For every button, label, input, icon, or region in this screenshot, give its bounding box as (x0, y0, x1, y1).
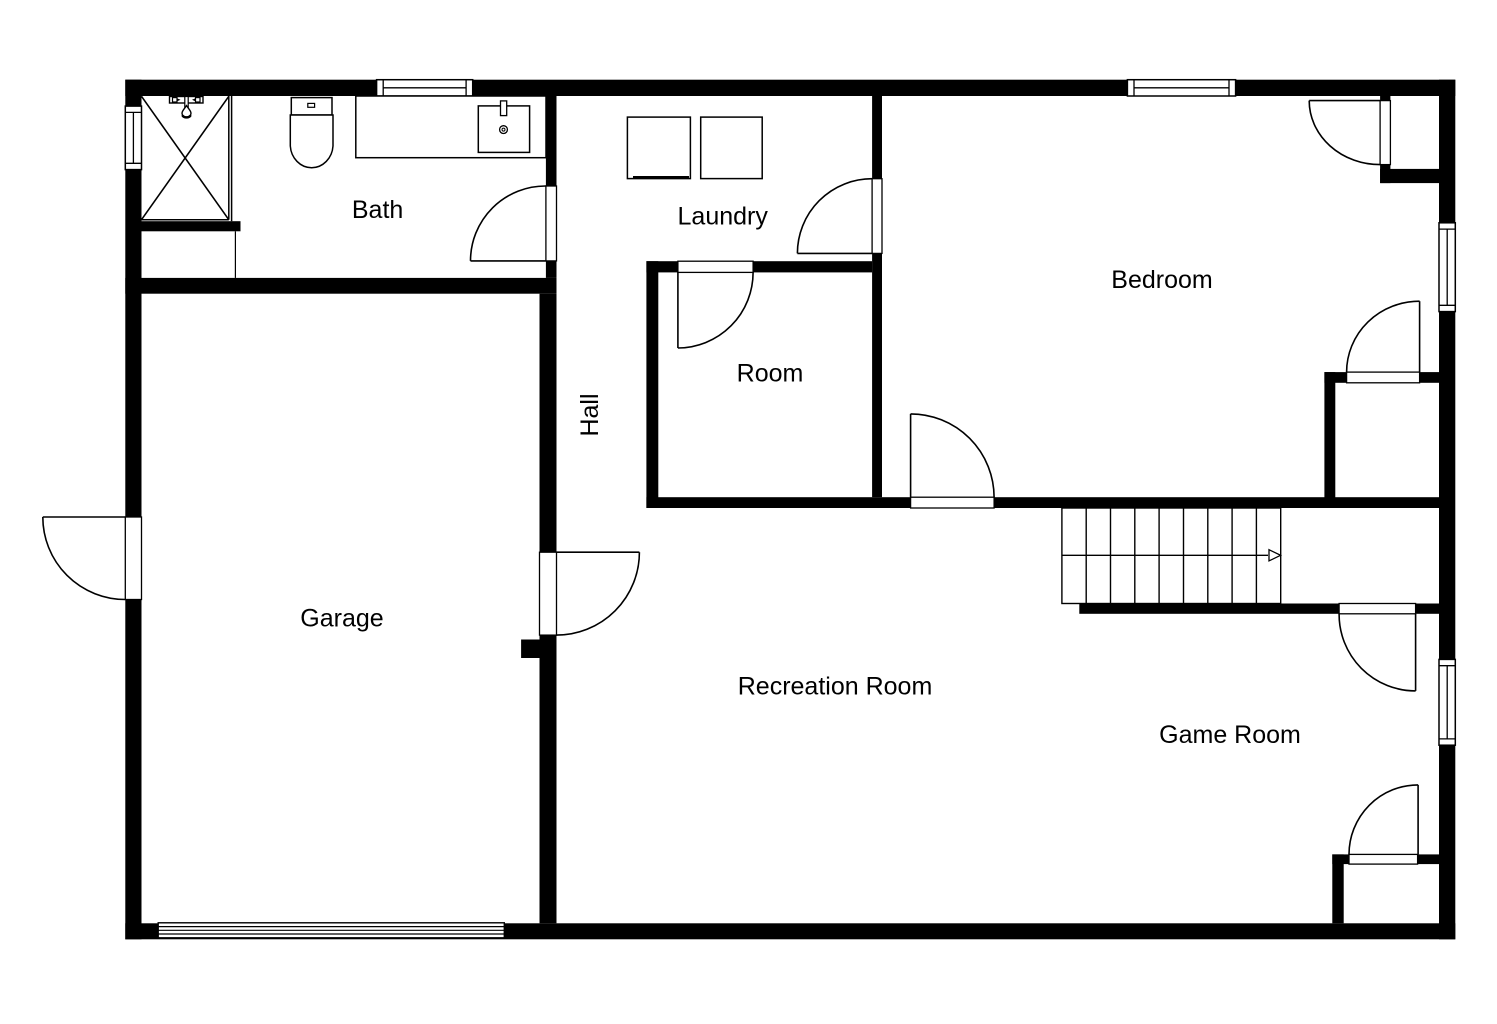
svg-text:Laundry: Laundry (678, 203, 769, 231)
svg-text:Game Room: Game Room (1159, 721, 1301, 749)
svg-text:Recreation Room: Recreation Room (738, 673, 933, 701)
svg-text:Hall: Hall (576, 393, 604, 436)
svg-text:Room: Room (737, 359, 804, 387)
svg-text:Bedroom: Bedroom (1111, 266, 1212, 294)
svg-text:Garage: Garage (300, 605, 383, 633)
svg-text:Bath: Bath (352, 196, 403, 224)
